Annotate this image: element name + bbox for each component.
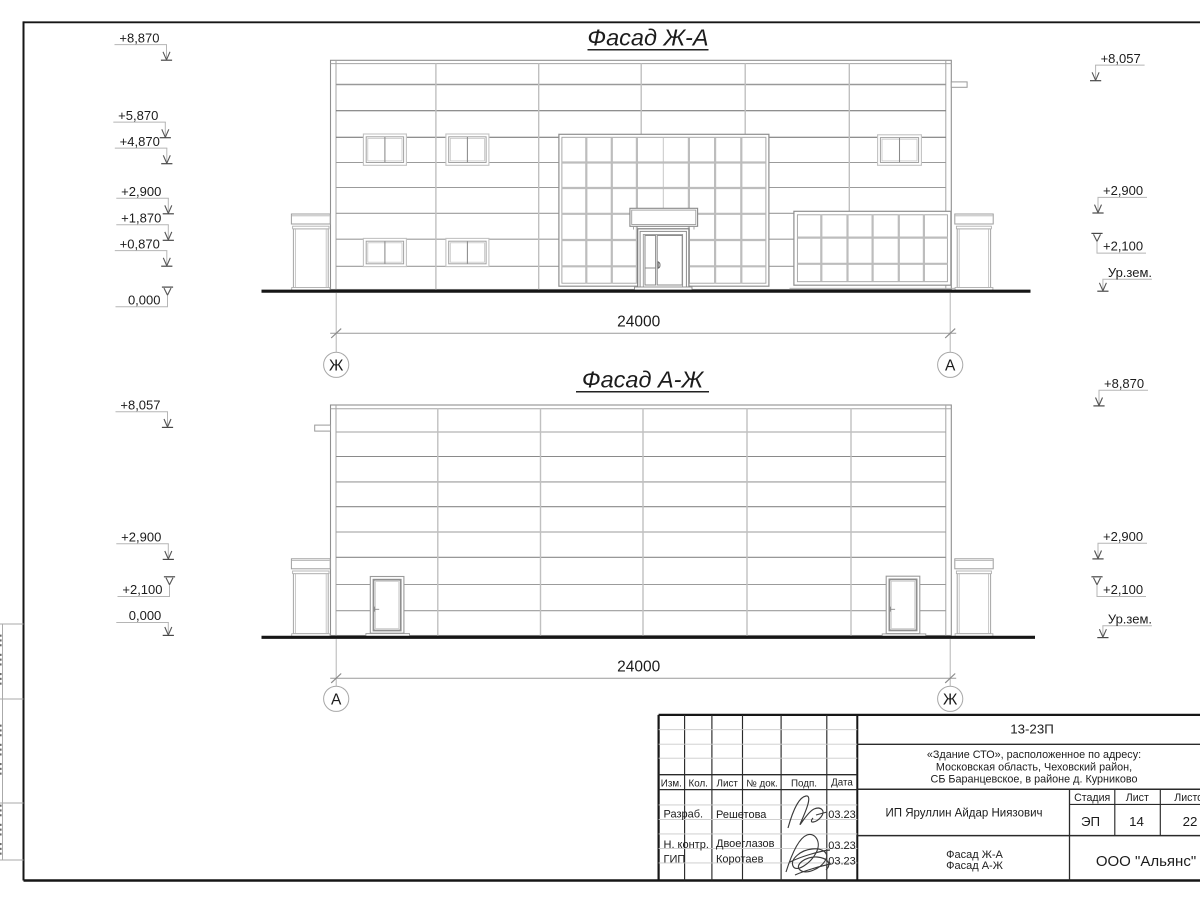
svg-text:Фасад Ж-А: Фасад Ж-А [587, 25, 708, 51]
svg-text:0,000: 0,000 [128, 292, 161, 307]
svg-text:03.23: 03.23 [828, 840, 856, 852]
svg-text:+4,870: +4,870 [120, 134, 160, 149]
svg-text:Ж: Ж [329, 357, 344, 374]
svg-text:+2,900: +2,900 [1103, 529, 1143, 544]
svg-text:0,000: 0,000 [129, 608, 162, 623]
svg-text:Двоеглазов: Двоеглазов [716, 838, 775, 850]
svg-text:ЭП: ЭП [1081, 814, 1100, 829]
svg-text:Лист: Лист [717, 778, 739, 789]
svg-text:+2,900: +2,900 [1103, 183, 1143, 198]
svg-text:+0,870: +0,870 [120, 236, 160, 251]
svg-text:№ док.: № док. [746, 778, 777, 789]
svg-text:14: 14 [1129, 814, 1144, 829]
svg-text:03.23: 03.23 [828, 855, 856, 867]
svg-text:Изм.: Изм. [661, 778, 682, 789]
svg-text:«Здание СТО», расположенное по: «Здание СТО», расположенное по адресу: [927, 749, 1141, 761]
svg-text:Лист: Лист [1126, 792, 1149, 804]
svg-text:+8,057: +8,057 [120, 398, 160, 413]
svg-text:+2,100: +2,100 [1103, 239, 1143, 254]
svg-text:Фасад Ж-А: Фасад Ж-А [946, 849, 1003, 861]
svg-text:Стадия: Стадия [1074, 792, 1110, 804]
svg-text:СБ Баранцевское, в районе д. К: СБ Баранцевское, в районе д. Курниково [931, 773, 1138, 785]
svg-text:24000: 24000 [617, 659, 660, 676]
svg-text:+2,900: +2,900 [121, 530, 161, 545]
svg-text:Ур.зем.: Ур.зем. [1108, 265, 1152, 280]
svg-text:Листов: Листов [1174, 792, 1200, 804]
svg-text:+1,870: +1,870 [121, 210, 161, 225]
svg-text:ООО "Альянс": ООО "Альянс" [1096, 853, 1196, 870]
svg-text:Кол.: Кол. [689, 778, 708, 789]
svg-text:+8,870: +8,870 [119, 30, 159, 45]
svg-text:Фасад А-Ж: Фасад А-Ж [946, 860, 1003, 872]
svg-text:+2,100: +2,100 [1103, 582, 1143, 597]
svg-text:03.23: 03.23 [828, 809, 856, 821]
svg-text:Решетова: Решетова [716, 809, 767, 821]
svg-text:24000: 24000 [617, 314, 660, 331]
svg-text:+2,900: +2,900 [121, 184, 161, 199]
svg-text:А: А [331, 691, 342, 708]
svg-text:Дата: Дата [831, 778, 853, 789]
svg-text:Подп.: Подп. [791, 778, 817, 789]
svg-text:Н. контр.: Н. контр. [664, 839, 709, 851]
svg-text:Ж: Ж [943, 691, 958, 708]
svg-text:+5,870: +5,870 [118, 108, 158, 123]
svg-text:Фасад А-Ж: Фасад А-Ж [582, 367, 705, 393]
svg-text:+8,057: +8,057 [1101, 51, 1141, 66]
svg-text:13-23П: 13-23П [1010, 722, 1054, 737]
svg-text:ИП Яруллин Айдар Ниязович: ИП Яруллин Айдар Ниязович [886, 808, 1043, 820]
svg-text:Коротаев: Коротаев [716, 853, 764, 865]
svg-text:Ур.зем.: Ур.зем. [1108, 611, 1152, 626]
svg-text:А: А [945, 357, 956, 374]
svg-text:ГИП: ГИП [664, 854, 686, 866]
svg-text:+2,100: +2,100 [122, 582, 162, 597]
svg-text:+8,870: +8,870 [1104, 376, 1144, 391]
svg-text:22: 22 [1183, 814, 1198, 829]
svg-text:Московская область, Чеховский: Московская область, Чеховский район, [936, 761, 1132, 773]
svg-text:Разраб.: Разраб. [664, 808, 704, 820]
